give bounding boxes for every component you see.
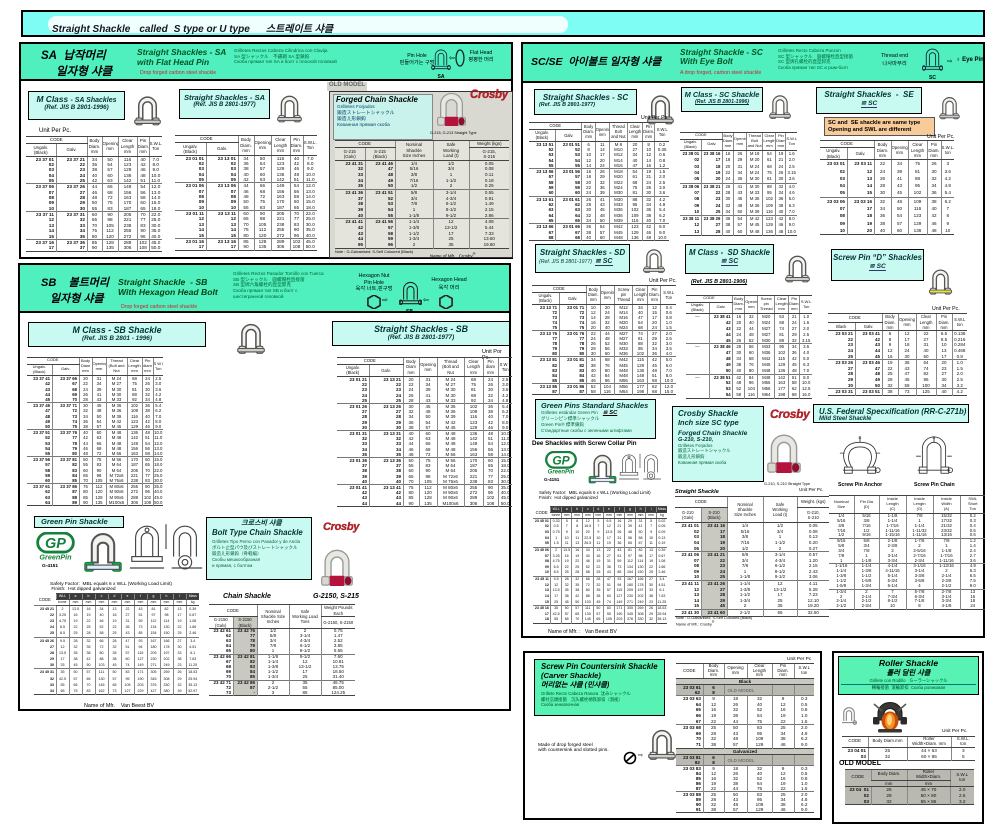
- svg-text:D: D: [858, 435, 861, 440]
- svg-text:GreenPin: GreenPin: [548, 470, 575, 475]
- svg-text:GreenPin: GreenPin: [39, 552, 72, 561]
- svg-text:D: D: [932, 435, 935, 440]
- svg-text:GP: GP: [45, 536, 66, 552]
- svg-text:GP: GP: [552, 453, 570, 467]
